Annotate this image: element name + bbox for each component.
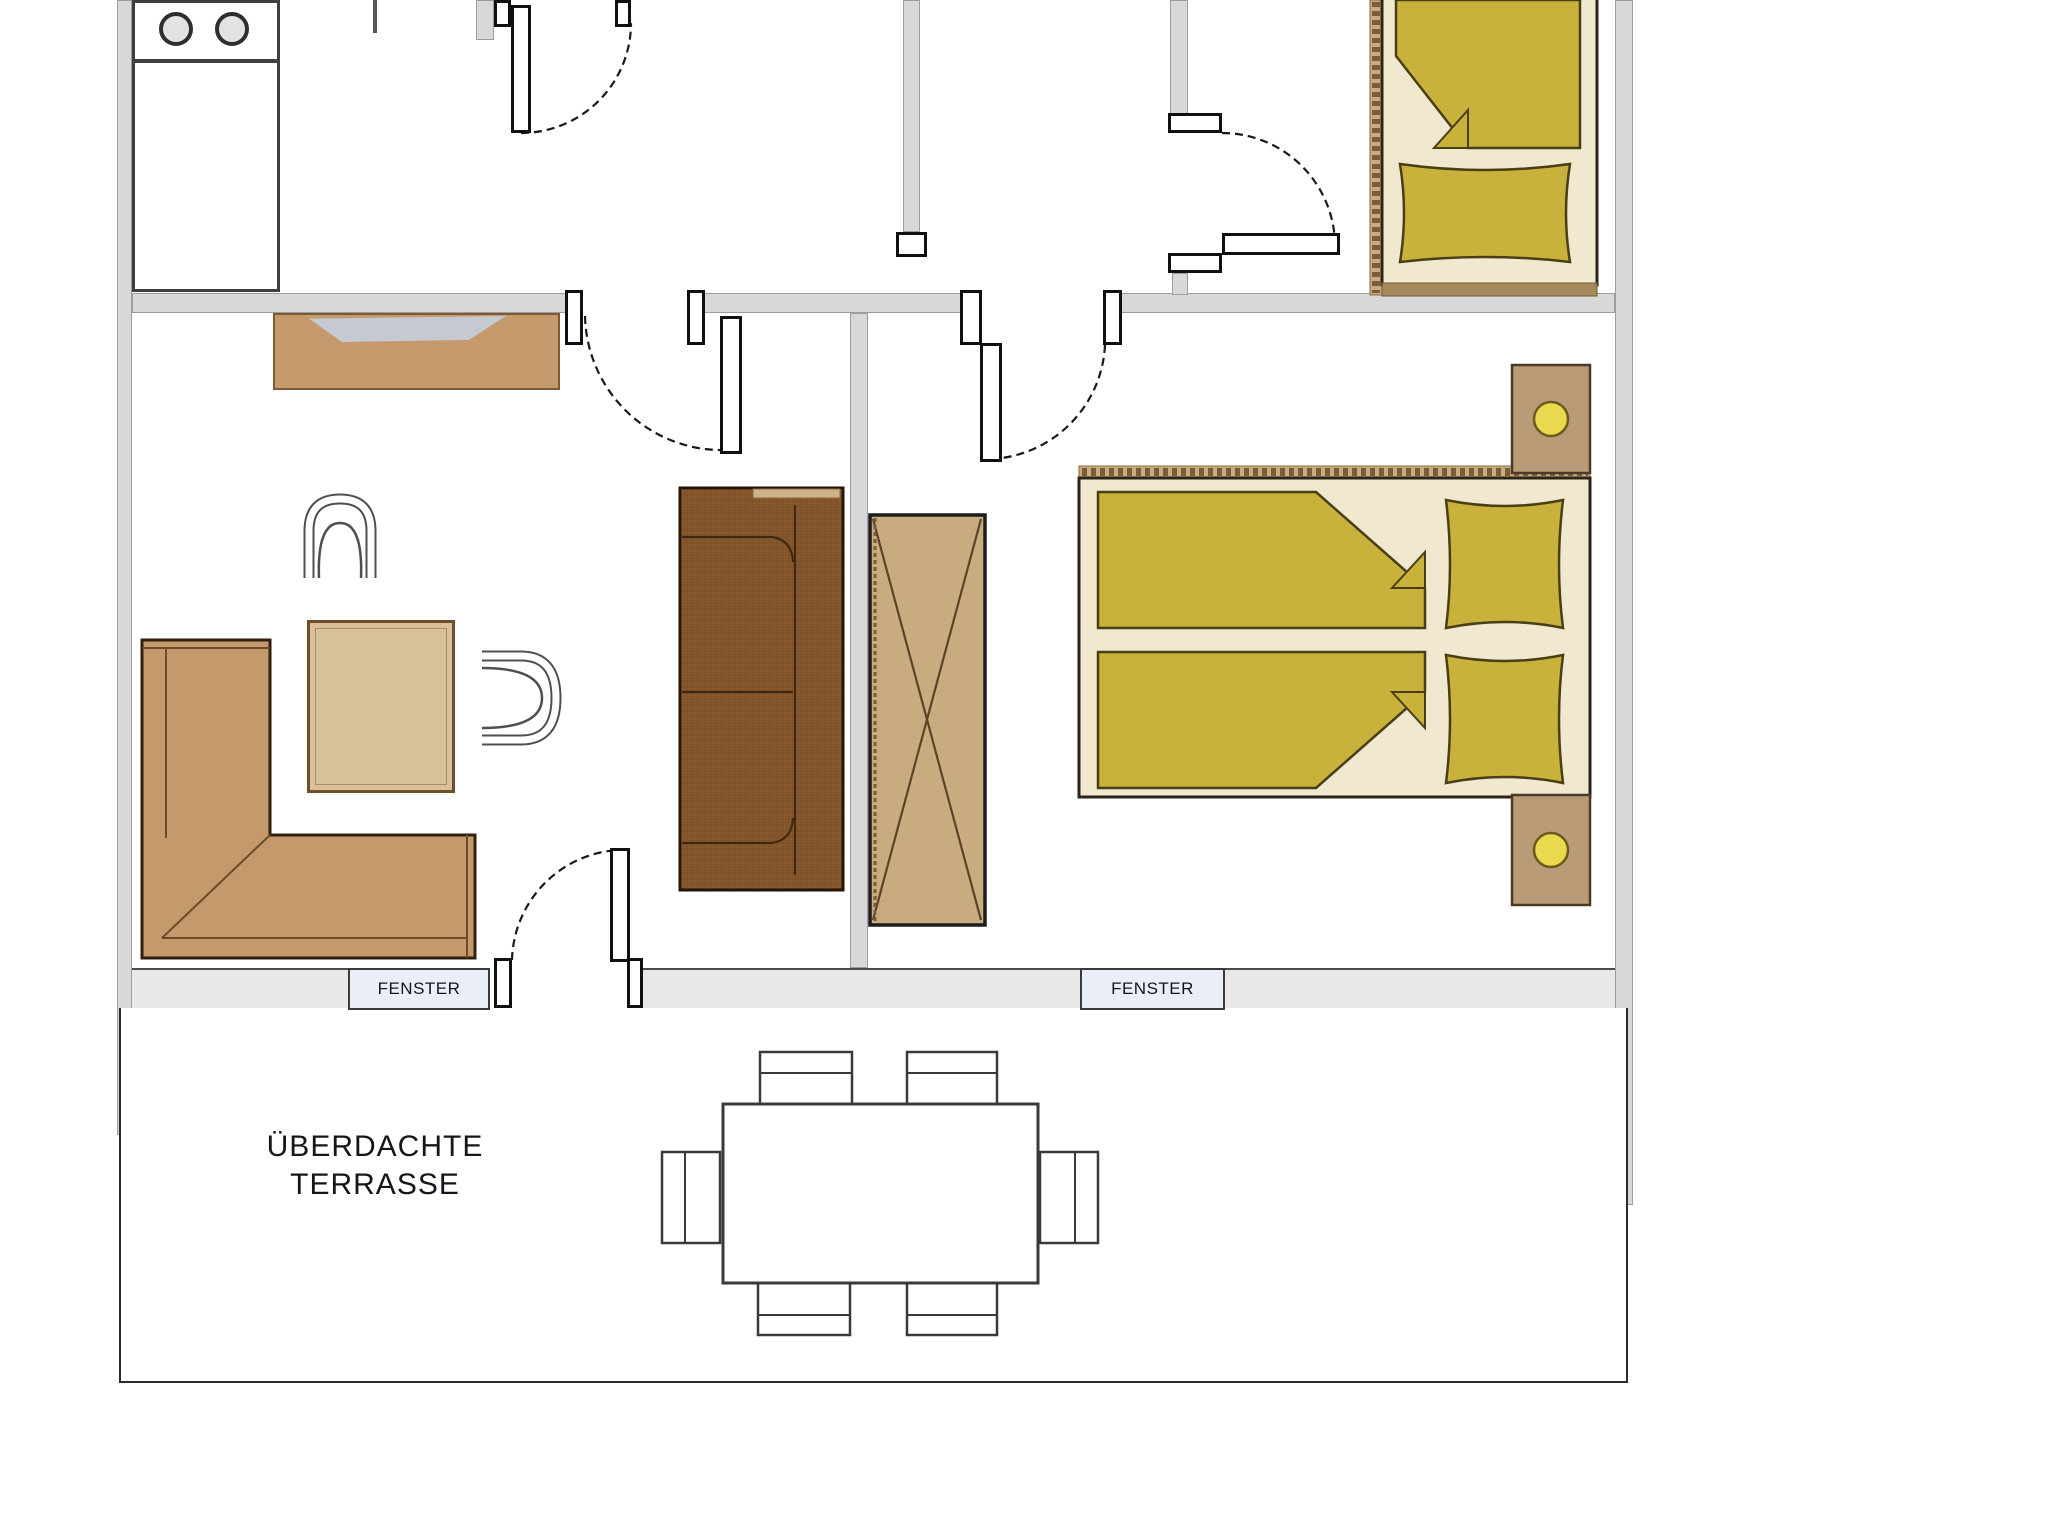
lamp-icon <box>1534 833 1568 867</box>
pillow <box>1400 164 1570 262</box>
single-bedroom-door-jamb <box>1168 113 1222 133</box>
single-bedroom-door-jamb <box>1168 253 1222 273</box>
hallway-wall-endcap <box>896 232 927 257</box>
armchair <box>482 656 556 740</box>
dining-chair <box>760 1052 852 1104</box>
wardrobe <box>870 515 985 925</box>
living-room-door-jamb <box>687 290 705 345</box>
corner-sofa <box>142 640 475 958</box>
burner-icon <box>217 14 247 44</box>
bedroom-door-jamb <box>1103 290 1122 345</box>
single-bed-footer <box>1382 283 1597 296</box>
dining-table <box>723 1104 1038 1283</box>
window-left: FENSTER <box>348 968 490 1010</box>
living-room-door-jamb <box>565 290 583 345</box>
sofa <box>680 488 843 890</box>
pillow <box>1446 500 1563 628</box>
window-right: FENSTER <box>1080 968 1225 1010</box>
armchair <box>309 499 371 578</box>
burner-icon <box>161 14 191 44</box>
dining-chair <box>662 1152 720 1243</box>
lamp-icon <box>1534 402 1568 436</box>
double-bed <box>1079 466 1590 797</box>
entry-door-leaf <box>511 5 531 133</box>
terrace-door-leaf <box>610 848 630 962</box>
terrace-label-line2: TERRASSE <box>225 1166 525 1204</box>
furniture-layer <box>0 0 2048 1538</box>
nightstand <box>1512 795 1590 905</box>
terrace-label-line1: ÜBERDACHTE <box>225 1128 525 1166</box>
terrace-door-jamb <box>494 958 512 1008</box>
bedroom-door-arc <box>1002 345 1105 458</box>
bedroom-door-jamb <box>960 290 982 345</box>
sofa-cushion <box>753 489 840 498</box>
nightstand <box>1512 365 1590 473</box>
entry-door-jamb <box>494 0 511 27</box>
dining-chair <box>907 1283 997 1335</box>
terrace-door-jamb <box>627 958 643 1008</box>
living-room-door-arc <box>585 316 727 450</box>
terrace-label: ÜBERDACHTE TERRASSE <box>225 1128 525 1204</box>
entry-door-jamb <box>615 0 631 27</box>
dining-chair <box>758 1283 850 1335</box>
pillow <box>1446 655 1563 783</box>
dining-chair <box>1040 1152 1098 1243</box>
dining-set <box>662 1052 1098 1335</box>
bedroom-door-leaf <box>980 343 1002 462</box>
dining-chair <box>907 1052 997 1104</box>
window-left-label: FENSTER <box>378 979 461 999</box>
window-right-label: FENSTER <box>1111 979 1194 999</box>
single-bedroom-door-leaf <box>1222 233 1340 255</box>
single-bed <box>1370 0 1597 296</box>
terrace-door-arc <box>512 850 618 960</box>
living-room-door-leaf <box>720 316 742 454</box>
single-bedroom-door-arc <box>1222 133 1335 246</box>
entry-door-arc <box>521 23 631 133</box>
